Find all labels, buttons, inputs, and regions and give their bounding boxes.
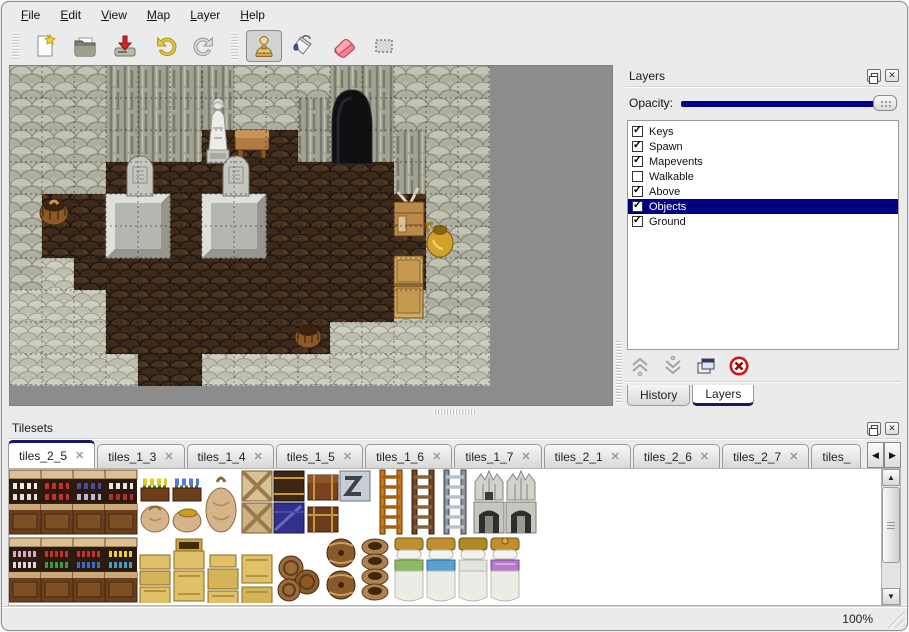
tile-shelf — [9, 470, 137, 534]
tile-crate — [242, 471, 304, 533]
menu-help[interactable]: Help — [231, 6, 274, 24]
save-button[interactable] — [107, 30, 143, 62]
layer-label: Ground — [649, 216, 686, 228]
cabinet — [394, 256, 423, 318]
layers-panel-titlebar: Layers ✕ — [625, 67, 901, 87]
duplicate-layer-button[interactable] — [693, 353, 719, 379]
lower-layer-button[interactable] — [660, 353, 686, 379]
main-area: Layers ✕ Opacity: ✓ Keys ✓ — [2, 65, 907, 406]
layer-visibility-checkbox[interactable]: ✓ — [632, 216, 643, 227]
tab-label: tiles_1_3 — [108, 450, 156, 464]
scroll-up-button[interactable]: ▲ — [882, 469, 900, 486]
tile-bed — [395, 538, 519, 601]
tab-label: tiles_ — [822, 450, 850, 464]
tileset-tab[interactable]: tiles_2_6✕ — [633, 444, 720, 468]
tab-close-icon[interactable]: ✕ — [343, 450, 352, 463]
layer-visibility-checkbox[interactable]: ✓ — [632, 126, 643, 137]
layer-actions-toolbar — [625, 350, 901, 382]
menu-edit[interactable]: Edit — [51, 6, 90, 24]
resize-grip-icon[interactable] — [887, 610, 905, 628]
save-icon — [113, 34, 137, 58]
fill-tool-button[interactable] — [286, 30, 322, 62]
raise-layer-icon — [629, 355, 651, 377]
tileset-tab[interactable]: tiles_2_1✕ — [544, 444, 631, 468]
tileset-tab[interactable]: tiles_1_7✕ — [454, 444, 541, 468]
cave-entrance — [332, 90, 372, 164]
layers-panel: Layers ✕ Opacity: ✓ Keys ✓ — [625, 65, 901, 406]
tab-close-icon[interactable]: ✕ — [432, 450, 441, 463]
tile-crate — [140, 539, 272, 603]
stamp-tool-button[interactable] — [246, 30, 282, 62]
check-icon: ✓ — [633, 215, 642, 226]
tab-label: tiles_1_4 — [198, 450, 246, 464]
menu-bar: File Edit View Map Layer Help — [2, 2, 907, 27]
float-panel-button[interactable] — [867, 69, 881, 82]
zoom-level: 100% — [842, 612, 873, 626]
tileset-scrollbar[interactable]: ▲ ▼ — [881, 469, 900, 605]
tab-close-icon[interactable]: ✕ — [75, 449, 84, 462]
redo-button[interactable] — [187, 30, 223, 62]
tab-label: tiles_1_5 — [287, 450, 335, 464]
tileset-preview — [9, 469, 875, 603]
tab-label: tiles_2_5 — [19, 449, 67, 463]
opacity-slider[interactable] — [681, 94, 897, 112]
layer-label: Keys — [649, 126, 673, 138]
tileset-tab[interactable]: tiles_ — [811, 444, 861, 468]
lower-layer-icon — [662, 355, 684, 377]
layer-label: Mapevents — [649, 156, 703, 168]
check-icon: ✓ — [633, 185, 642, 196]
undo-icon — [153, 34, 177, 58]
map-canvas[interactable] — [9, 65, 613, 406]
tile-stone-door — [474, 471, 536, 533]
app-window: File Edit View Map Layer Help — [1, 1, 908, 631]
float-icon — [871, 73, 878, 79]
layer-label: Spawn — [649, 141, 683, 153]
float-icon — [871, 425, 878, 431]
tab-label: tiles_2_7 — [733, 450, 781, 464]
tab-scroll-left-button[interactable]: ◀ — [867, 442, 884, 468]
check-icon: ✓ — [633, 140, 642, 151]
tileset-tab[interactable]: tiles_1_4✕ — [187, 444, 274, 468]
float-panel-button[interactable] — [867, 422, 881, 435]
new-file-icon — [33, 34, 57, 58]
opacity-slider-track[interactable] — [681, 101, 897, 107]
tileset-tab[interactable]: tiles_2_5✕ — [8, 440, 95, 468]
tileset-content: ▲ ▼ — [8, 468, 901, 606]
layer-visibility-checkbox[interactable]: ✓ — [632, 141, 643, 152]
tab-label: Layers — [705, 387, 741, 401]
tile-shelf — [9, 538, 137, 602]
tilesets-panel: Tilesets ✕ tiles_2_5✕ tiles_1_3✕ tiles_1… — [2, 418, 907, 606]
splitter-grip[interactable] — [616, 341, 622, 403]
tab-close-icon[interactable]: ✕ — [700, 450, 709, 463]
layer-visibility-checkbox[interactable]: ✓ — [632, 171, 643, 182]
eraser-tool-icon — [332, 34, 356, 58]
layer-row-objects[interactable]: ✓ Objects — [628, 199, 898, 214]
basket — [40, 201, 68, 226]
rect-select-tool-icon — [372, 34, 396, 58]
tileset-canvas[interactable] — [9, 469, 881, 605]
tab-scroll-right-button[interactable]: ▶ — [884, 442, 901, 468]
layers-panel-title: Layers — [629, 69, 665, 83]
scroll-down-button[interactable]: ▼ — [882, 588, 900, 605]
tab-close-icon[interactable]: ✕ — [521, 450, 530, 463]
raise-layer-button[interactable] — [627, 353, 653, 379]
close-icon: ✕ — [888, 71, 896, 80]
close-panel-button[interactable]: ✕ — [885, 69, 899, 82]
tab-history[interactable]: History — [627, 385, 690, 406]
tile-planter — [141, 482, 201, 501]
menu-file[interactable]: File — [12, 6, 49, 24]
tab-layers[interactable]: Layers — [692, 385, 754, 406]
tab-close-icon[interactable]: ✕ — [164, 450, 173, 463]
layer-row-walkable[interactable]: ✓ Walkable — [628, 169, 898, 184]
menu-map[interactable]: Map — [138, 6, 179, 24]
tile-pot-stack — [362, 539, 388, 600]
check-icon: ✓ — [633, 155, 642, 166]
scrollbar-thumb[interactable] — [882, 487, 900, 562]
close-icon: ✕ — [888, 424, 896, 433]
tilesets-panel-title: Tilesets — [12, 421, 53, 435]
vertical-splitter[interactable] — [613, 65, 625, 406]
tab-label: History — [640, 388, 677, 402]
map-render — [10, 66, 490, 386]
layer-visibility-checkbox[interactable]: ✓ — [632, 201, 643, 212]
delete-layer-icon — [728, 355, 750, 377]
new-file-button[interactable] — [27, 30, 63, 62]
stamp-tool-icon — [252, 34, 276, 58]
tile-ladder — [380, 470, 466, 534]
tab-label: tiles_2_1 — [555, 450, 603, 464]
layer-visibility-checkbox[interactable]: ✓ — [632, 156, 643, 167]
tilesets-titlebar: Tilesets ✕ — [8, 418, 901, 439]
layer-label: Objects — [649, 201, 686, 213]
tileset-tab[interactable]: tiles_1_3✕ — [97, 444, 184, 468]
tileset-tab[interactable]: tiles_2_7✕ — [722, 444, 809, 468]
check-icon: ✓ — [633, 125, 642, 136]
layer-row-keys[interactable]: ✓ Keys — [628, 124, 898, 139]
menu-layer[interactable]: Layer — [181, 6, 229, 24]
close-panel-button[interactable]: ✕ — [885, 422, 899, 435]
opacity-slider-handle[interactable] — [873, 95, 897, 111]
duplicate-layer-icon — [695, 355, 717, 377]
tileset-tab[interactable]: tiles_1_6✕ — [365, 444, 452, 468]
eraser-tool-button[interactable] — [326, 30, 362, 62]
open-folder-icon — [73, 34, 97, 58]
horizontal-splitter[interactable] — [2, 406, 907, 418]
layer-row-mapevents[interactable]: ✓ Mapevents — [628, 154, 898, 169]
toolbar-drag-handle[interactable] — [12, 32, 19, 60]
scrollbar-track[interactable] — [882, 486, 900, 588]
opacity-row: Opacity: — [625, 87, 901, 118]
tab-label: tiles_2_6 — [644, 450, 692, 464]
tile-chest — [308, 471, 370, 532]
fill-tool-icon — [292, 34, 316, 58]
side-panel-tabs: History Layers — [625, 382, 901, 406]
tab-close-icon[interactable]: ✕ — [789, 450, 798, 463]
toolbar-drag-handle[interactable] — [231, 32, 238, 60]
layer-row-spawn[interactable]: ✓ Spawn — [628, 139, 898, 154]
menu-view[interactable]: View — [92, 6, 136, 24]
tab-label: tiles_1_6 — [376, 450, 424, 464]
undo-button[interactable] — [147, 30, 183, 62]
delete-layer-button[interactable] — [726, 353, 752, 379]
open-button[interactable] — [67, 30, 103, 62]
layer-label: Walkable — [649, 171, 694, 183]
layer-row-above[interactable]: ✓ Above — [628, 184, 898, 199]
check-icon: ✓ — [633, 200, 642, 211]
tab-label: tiles_1_7 — [465, 450, 513, 464]
toolbar — [2, 27, 907, 66]
redo-icon — [193, 34, 217, 58]
tileset-tab[interactable]: tiles_1_5✕ — [276, 444, 363, 468]
layer-row-ground[interactable]: ✓ Ground — [628, 214, 898, 229]
opacity-label: Opacity: — [629, 96, 673, 110]
splitter-grip[interactable] — [434, 409, 476, 415]
basket — [295, 326, 321, 348]
layer-label: Above — [649, 186, 680, 198]
tab-close-icon[interactable]: ✕ — [611, 450, 620, 463]
tab-close-icon[interactable]: ✕ — [254, 450, 263, 463]
status-bar: 100% — [2, 606, 907, 630]
layer-visibility-checkbox[interactable]: ✓ — [632, 186, 643, 197]
layer-list: ✓ Keys ✓ Spawn ✓ Mapevents ✓ Walkable ✓ — [627, 120, 899, 350]
rect-select-tool-button[interactable] — [366, 30, 402, 62]
tileset-tabbar: tiles_2_5✕ tiles_1_3✕ tiles_1_4✕ tiles_1… — [8, 439, 901, 468]
tile-barrel — [278, 539, 355, 601]
